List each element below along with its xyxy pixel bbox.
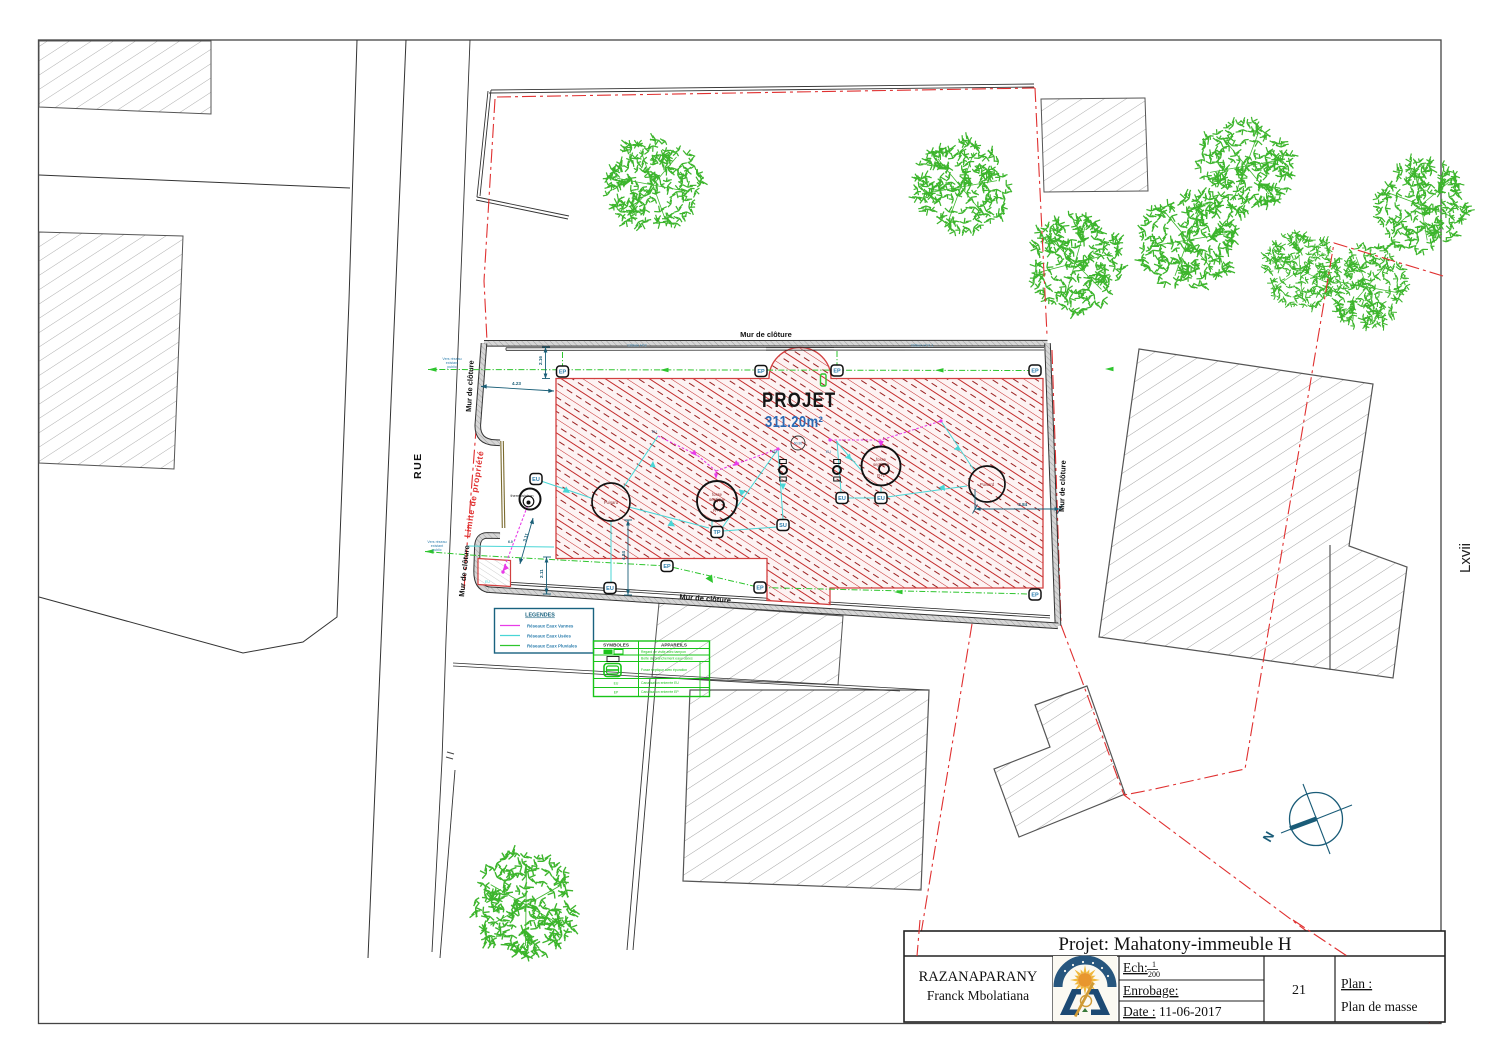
svg-text:Réseaux Eaux Pluviales: Réseaux Eaux Pluviales	[527, 644, 578, 649]
svg-text:Franck Mbolatiana: Franck Mbolatiana	[927, 988, 1029, 1003]
svg-text:Clôture H=2: Clôture H=2	[627, 344, 646, 348]
svg-text:EU: EU	[532, 477, 540, 483]
svg-text:Clôture H=2.1: Clôture H=2.1	[911, 344, 933, 348]
svg-text:2.11: 2.11	[539, 569, 544, 578]
svg-text:Date : 11-06-2017: Date : 11-06-2017	[1123, 1004, 1222, 1019]
svg-text:Réseaux Eaux Vannes: Réseaux Eaux Vannes	[527, 624, 574, 629]
svg-text:EU: EU	[877, 496, 885, 502]
svg-text:R+1: R+1	[713, 508, 721, 513]
svg-text:21: 21	[1292, 983, 1306, 998]
svg-text:RUE: RUE	[412, 452, 424, 479]
svg-text:1: 1	[1152, 960, 1156, 969]
svg-text:EP: EP	[1031, 369, 1039, 375]
svg-text:septique: septique	[709, 497, 726, 502]
svg-text:Boîte de branchement eaux usée: Boîte de branchement eaux usées	[641, 657, 693, 661]
svg-text:EU: EU	[614, 682, 619, 686]
svg-text:septique: septique	[873, 462, 890, 467]
svg-text:thermosiphon: thermosiphon	[510, 494, 533, 498]
svg-text:EP: EP	[757, 369, 765, 375]
svg-text:EU: EU	[606, 586, 614, 592]
svg-text:-2.84: -2.84	[1017, 502, 1028, 507]
svg-text:EU: EU	[652, 430, 657, 434]
svg-text:TP: TP	[713, 530, 720, 536]
svg-text:Mur de clôture: Mur de clôture	[1057, 460, 1068, 512]
svg-text:EU: EU	[772, 450, 777, 454]
svg-text:Puisard: Puisard	[980, 482, 995, 487]
svg-text:EP: EP	[1031, 593, 1039, 599]
svg-text:Plan :: Plan :	[1341, 976, 1372, 991]
svg-text:Canalisation enterrée EP: Canalisation enterrée EP	[641, 690, 679, 694]
svg-text:Regard de visite avec tampon: Regard de visite avec tampon	[641, 650, 686, 654]
svg-text:Enrobage:: Enrobage:	[1123, 983, 1178, 998]
svg-text:EP: EP	[833, 369, 841, 375]
svg-text:EP: EP	[756, 586, 764, 592]
svg-text:2.16: 2.16	[538, 356, 543, 365]
svg-text:4.23: 4.23	[512, 381, 521, 386]
svg-text:Plan de masse: Plan de masse	[1341, 999, 1418, 1014]
svg-text:Puisard: Puisard	[604, 500, 619, 505]
svg-text:LEGENDES: LEGENDES	[525, 613, 555, 619]
svg-text:Fosse septique avec épuration: Fosse septique avec épuration	[641, 668, 687, 672]
svg-text:APPAREILS: APPAREILS	[661, 643, 687, 648]
svg-text:Canalisation enterrée EU: Canalisation enterrée EU	[641, 681, 679, 685]
svg-text:Lxvii: Lxvii	[1457, 543, 1474, 573]
svg-text:SYMBOLES: SYMBOLES	[603, 643, 629, 648]
svg-text:Mur de clôture: Mur de clôture	[740, 330, 792, 339]
svg-text:6.0: 6.0	[508, 540, 513, 544]
svg-text:PROJET: PROJET	[762, 389, 836, 412]
svg-text:EU: EU	[838, 496, 846, 502]
svg-text:Projet: Mahatony-immeuble H: Projet: Mahatony-immeuble H	[1058, 934, 1292, 955]
svg-text:60.80: 60.80	[794, 442, 803, 446]
svg-text:Réseaux Eaux Usées: Réseaux Eaux Usées	[527, 634, 571, 639]
svg-text:EP: EP	[614, 691, 619, 695]
svg-text:EP: EP	[663, 564, 671, 570]
svg-text:200: 200	[1148, 970, 1160, 979]
svg-text:SU: SU	[779, 523, 787, 529]
svg-text:RAZANAPARANY: RAZANAPARANY	[919, 969, 1038, 985]
svg-text:R+1: R+1	[877, 473, 885, 478]
svg-text:EU: EU	[826, 450, 831, 454]
svg-text:EU: EU	[485, 580, 490, 584]
svg-text:EP: EP	[559, 370, 567, 376]
svg-text:public: public	[447, 365, 457, 369]
svg-text:4.24: 4.24	[621, 551, 626, 560]
svg-text:311.20m²: 311.20m²	[765, 414, 823, 431]
svg-text:Ech:: Ech:	[1123, 960, 1148, 975]
svg-text:public: public	[432, 548, 442, 552]
